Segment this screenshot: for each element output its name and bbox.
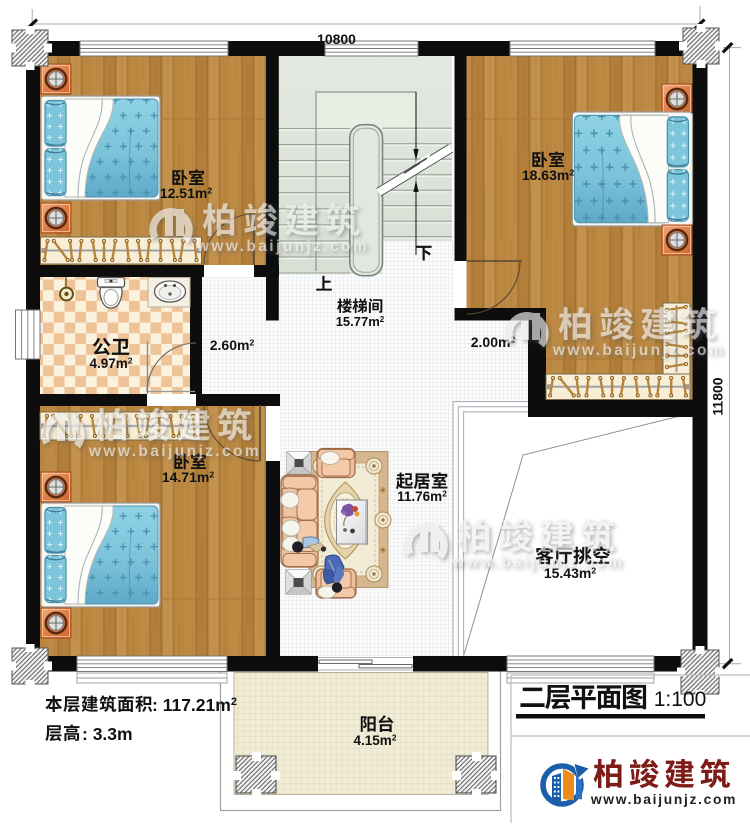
svg-text:10800: 10800 bbox=[317, 31, 356, 47]
svg-text:18.63m2: 18.63m2 bbox=[522, 167, 574, 183]
svg-text:www.baijunjz.com: www.baijunjz.com bbox=[88, 443, 261, 460]
svg-text:: 3.3m: : 3.3m bbox=[82, 724, 133, 744]
svg-text:4.15m2: 4.15m2 bbox=[354, 733, 397, 748]
svg-text:14.71m2: 14.71m2 bbox=[162, 469, 214, 485]
svg-text:2.60m2: 2.60m2 bbox=[210, 337, 255, 353]
svg-text:12.51m2: 12.51m2 bbox=[160, 185, 212, 201]
svg-text:www.baijunjz.com: www.baijunjz.com bbox=[590, 792, 737, 807]
svg-text:1:100: 1:100 bbox=[654, 688, 707, 711]
svg-text:11800: 11800 bbox=[710, 377, 726, 415]
svg-text:www.baijunjz.com: www.baijunjz.com bbox=[451, 554, 624, 571]
svg-text:15.77m2: 15.77m2 bbox=[336, 314, 385, 329]
svg-text:www.baijunjz.com: www.baijunjz.com bbox=[196, 238, 369, 255]
svg-text:www.baijunjz.com: www.baijunjz.com bbox=[552, 342, 725, 359]
svg-text:: 117.21m2: : 117.21m2 bbox=[152, 695, 237, 715]
svg-text:11.76m2: 11.76m2 bbox=[397, 489, 447, 504]
svg-text:4.97m2: 4.97m2 bbox=[90, 356, 133, 371]
